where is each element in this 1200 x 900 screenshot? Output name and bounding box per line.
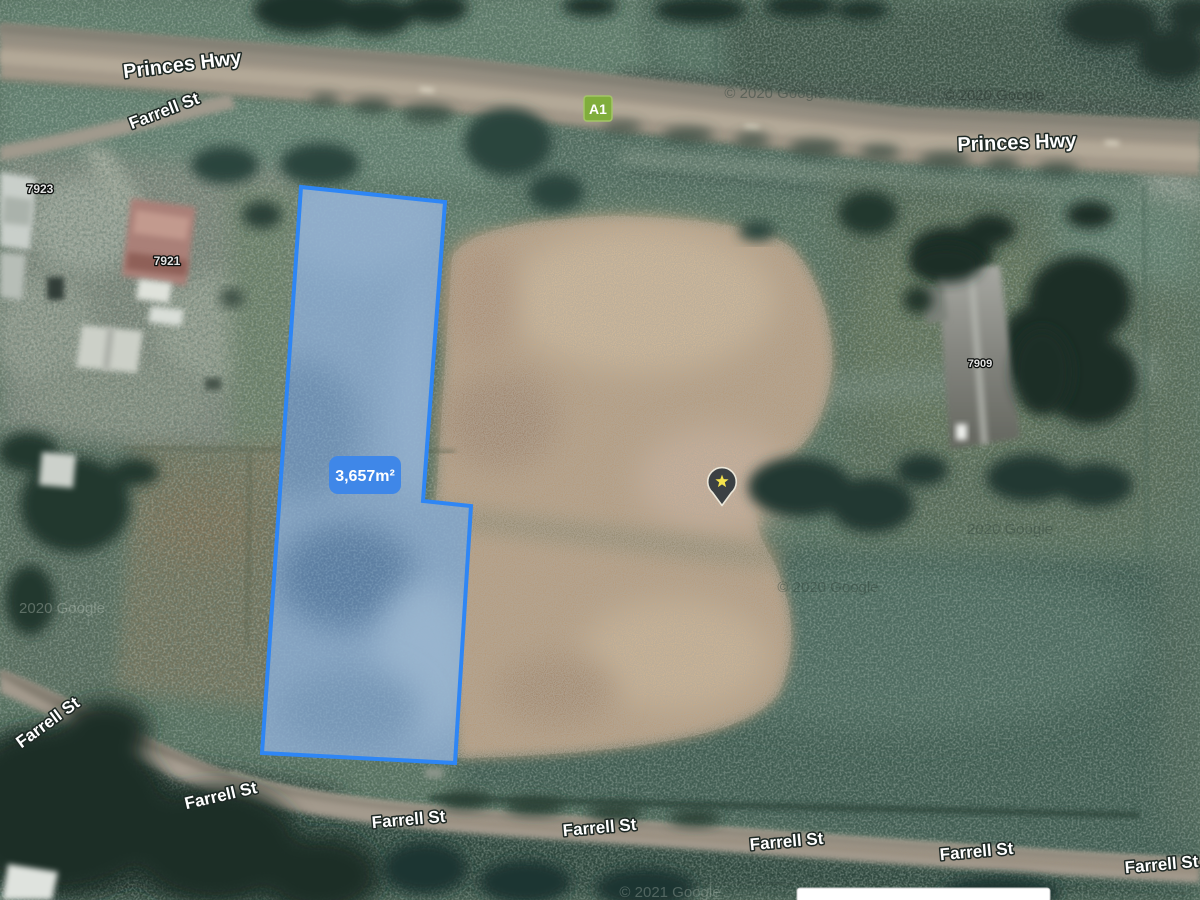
svg-text:7923: 7923 [27, 182, 54, 196]
svg-text:7909: 7909 [968, 358, 992, 370]
svg-text:2020 Google: 2020 Google [19, 600, 105, 617]
svg-text:A1: A1 [589, 101, 607, 117]
svg-text:3,657m²: 3,657m² [335, 468, 395, 485]
svg-text:Princes Hwy: Princes Hwy [957, 130, 1078, 156]
svg-text:© 2020 Google: © 2020 Google [777, 579, 878, 596]
svg-text:© 2020 Google: © 2020 Google [724, 85, 825, 102]
svg-text:© 2020 Google: © 2020 Google [943, 87, 1044, 104]
svg-text:7921: 7921 [154, 254, 181, 268]
svg-text:© 2021 Google: © 2021 Google [619, 884, 720, 900]
svg-text:2020 Google: 2020 Google [967, 521, 1053, 538]
